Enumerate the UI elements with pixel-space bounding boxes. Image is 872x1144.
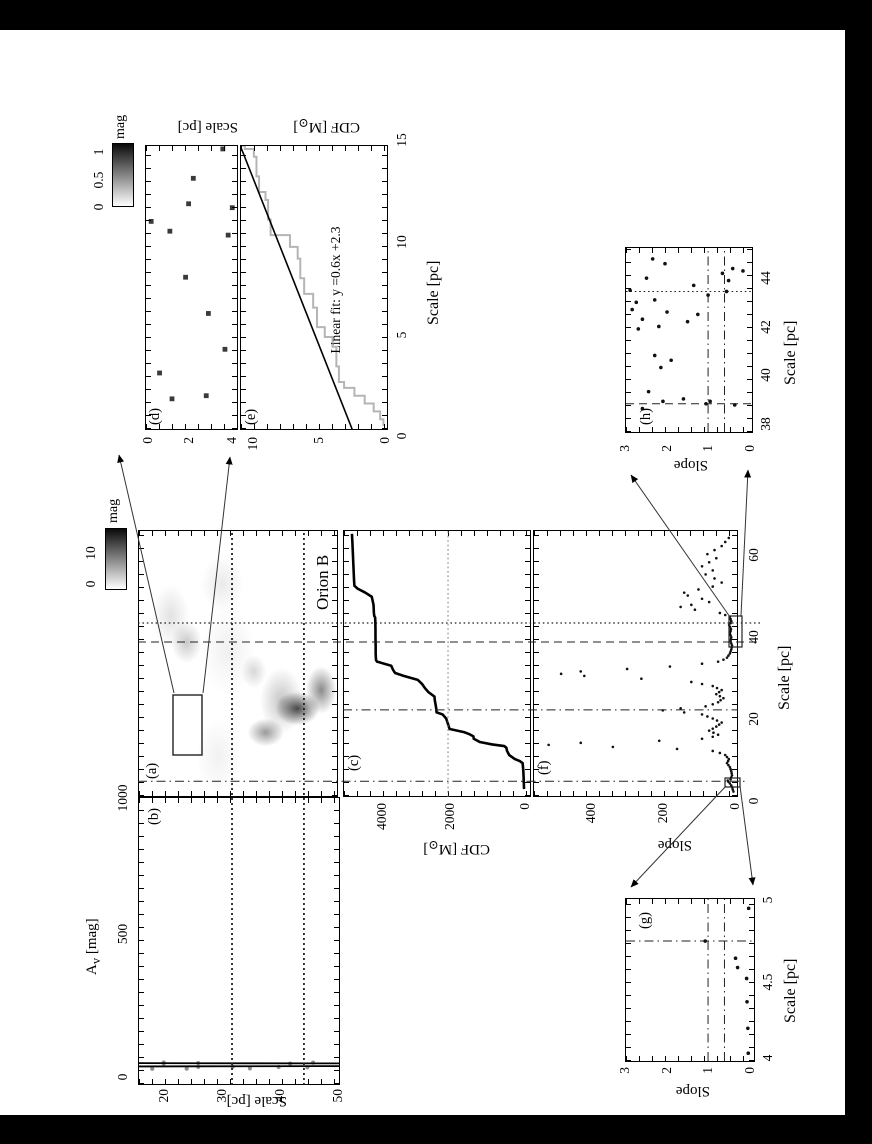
pdf-viewer-canvas: (b) Av [mag] 0 500 1000 20 30 40 50 Scal… <box>0 0 872 1144</box>
annotation-overlay <box>0 30 845 1115</box>
arrow-f-to-h-bottom <box>741 470 748 616</box>
zoom-rectangle-a <box>173 695 202 755</box>
scale-marker-lines <box>138 530 762 1085</box>
arrow-a-to-d <box>119 455 174 693</box>
paper-page: (b) Av [mag] 0 500 1000 20 30 40 50 Scal… <box>0 30 845 1115</box>
arrow-a-to-e <box>203 457 230 693</box>
figure-orion-b: (b) Av [mag] 0 500 1000 20 30 40 50 Scal… <box>0 30 845 1115</box>
arrow-f-to-h-top <box>631 475 730 617</box>
zoom-rectangle-f-small-scale <box>725 778 740 787</box>
arrow-f-to-g-top <box>631 786 726 887</box>
arrow-f-to-g-bottom <box>740 786 753 885</box>
